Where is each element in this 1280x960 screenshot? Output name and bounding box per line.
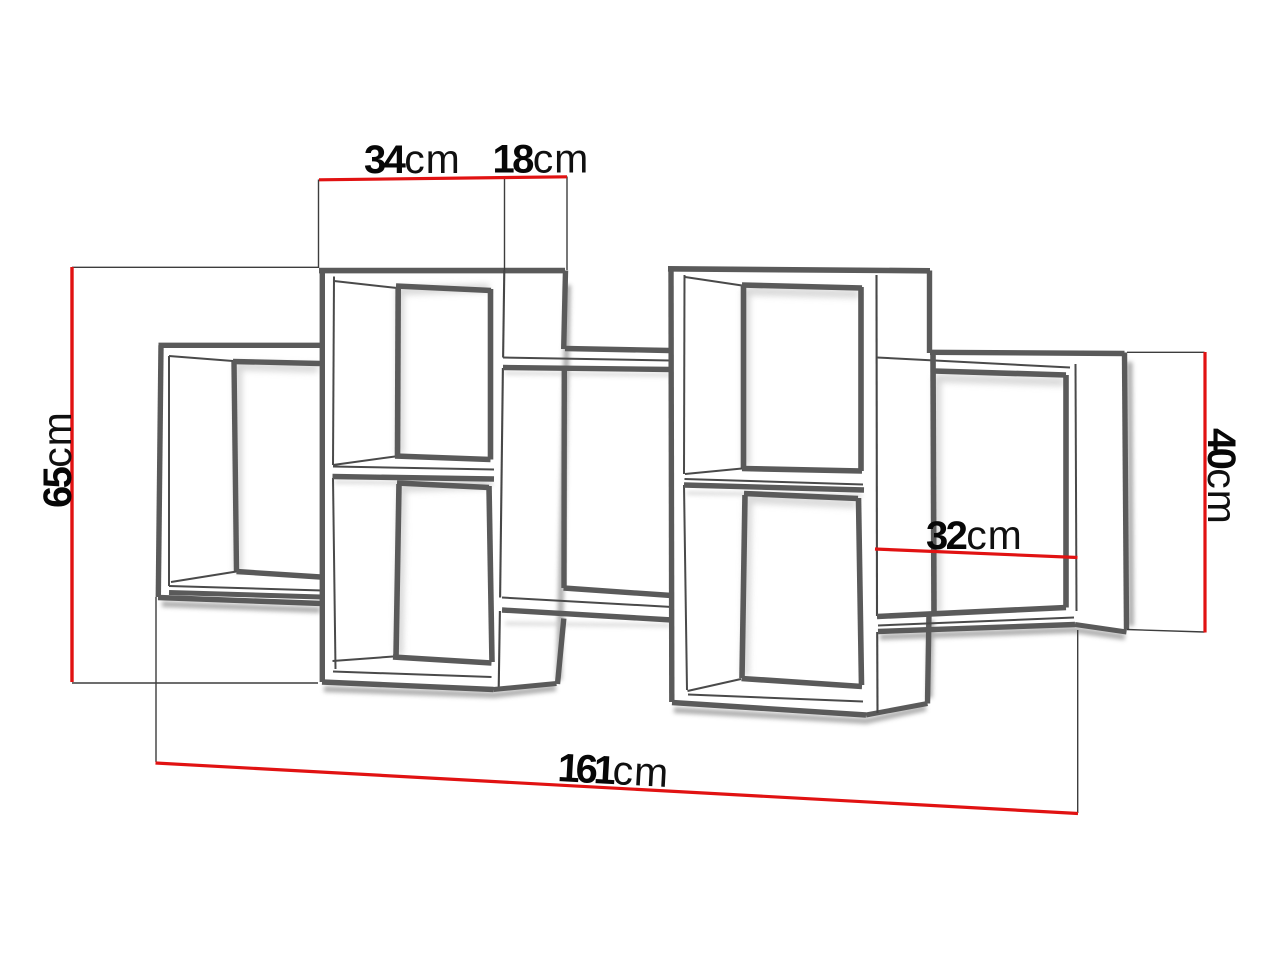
svg-text:34cm: 34cm <box>364 136 461 182</box>
svg-text:65cm: 65cm <box>34 411 80 508</box>
svg-text:32cm: 32cm <box>926 512 1023 558</box>
svg-text:161cm: 161cm <box>557 744 671 796</box>
svg-text:18cm: 18cm <box>493 136 590 182</box>
svg-text:40cm: 40cm <box>1199 428 1245 525</box>
